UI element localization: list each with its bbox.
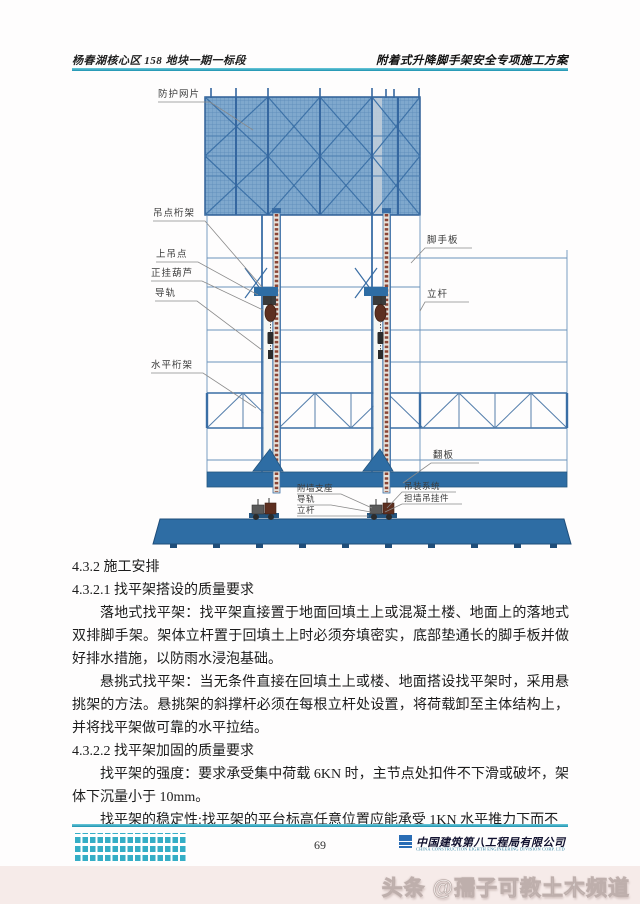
heading-4-3-2-1: 4.3.2.1 找平架搭设的质量要求 (72, 579, 569, 602)
label-flip-board: 翻板 (433, 452, 454, 462)
label-lifting-point-truss: 吊点桁架 (153, 210, 195, 220)
guide-rail-tower-right (355, 208, 393, 493)
label-chain-hoist: 正挂葫芦 (151, 270, 193, 280)
label-scaffold-board: 脚手板 (427, 237, 459, 247)
label-upper-lifting-point: 上吊点 (156, 251, 188, 261)
label-wall-hanger: 担墙吊挂件 (404, 494, 449, 503)
heading-4-3-2: 4.3.2 施工安排 (72, 556, 569, 579)
paragraph-strength: 找平架的强度：要求承受集中荷载 6KN 时，主节点处扣件不下滑或破坏，架体下沉量… (72, 763, 569, 809)
bottom-platform (153, 519, 571, 548)
cscec-logo-icon (399, 835, 412, 848)
label-wall-attached-support: 附墙支座 (297, 484, 333, 493)
label-horizontal-truss: 水平桁架 (151, 362, 193, 372)
paragraph-ground-type: 落地式找平架：找平架直接置于地面回填土上或混凝土楼、地面上的落地式双排脚手架。架… (72, 602, 569, 671)
watermark-text: 头条 @孺子可教土木频道 (382, 872, 630, 902)
label-hoisting-system: 吊装系统 (404, 482, 440, 491)
document-page: 杨春湖核心区 158 地块一期一标段 附着式升降脚手架安全专项施工方案 (0, 0, 640, 904)
label-guide-rail-left: 导轨 (155, 290, 176, 300)
paragraph-stability: 找平架的稳定性:找平架的平台标高任意位置应能承受 1KN 水平推力下而不 (72, 809, 569, 832)
label-vertical-pole-right: 立杆 (427, 291, 448, 301)
protective-mesh-panel (205, 88, 420, 215)
label-vertical-pole-bottom: 立杆 (297, 506, 315, 515)
scaffold-diagram (0, 0, 640, 560)
paragraph-cantilever: 悬挑式找平架：当无条件直接在回填土上或楼、地面搭设找平架时，采用悬挑架的方法。悬… (72, 671, 569, 740)
company-name-en: CHINA CONSTRUCTION EIGHTH ENGINEERING DI… (416, 847, 565, 852)
heading-4-3-2-2: 4.3.2.2 找平架加固的质量要求 (72, 740, 569, 763)
label-protective-mesh: 防护网片 (158, 91, 200, 101)
watermark-strip: 头条 @孺子可教土木频道 (0, 866, 640, 904)
guide-rail-tower-left (245, 208, 283, 493)
footer-rule (72, 824, 568, 827)
body-text: 4.3.2 施工安排 4.3.2.1 找平架搭设的质量要求 落地式找平架：找平架… (72, 556, 569, 832)
hoisting-system-assembly (249, 498, 397, 520)
label-guide-rail-bottom: 导轨 (297, 495, 315, 504)
